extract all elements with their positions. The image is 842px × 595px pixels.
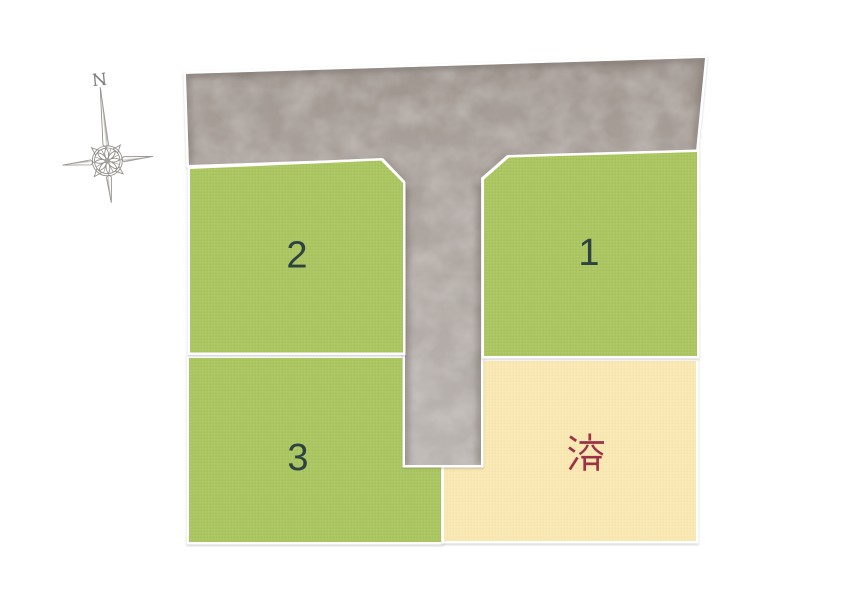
svg-text:2: 2 (286, 235, 307, 277)
svg-text:3: 3 (287, 437, 308, 479)
svg-text:1: 1 (578, 232, 599, 274)
